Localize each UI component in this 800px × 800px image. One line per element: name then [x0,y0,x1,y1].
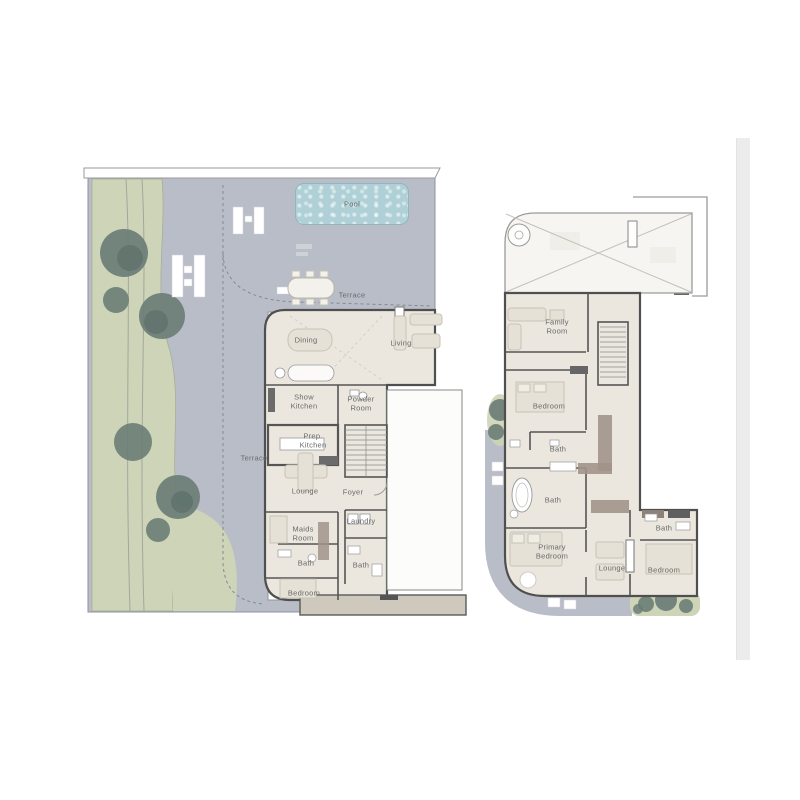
bath-2-label: Bath [545,495,561,504]
powder-room-label: Powder Room [348,395,375,414]
family-room-label: Family Room [545,318,569,337]
foyer-label: Foyer [343,487,363,496]
maids-room-label: Maids Room [292,525,313,544]
courtyard [387,390,462,590]
bath-2-label: Bath [353,560,369,569]
pool-label: Pool [344,199,360,208]
pool: Pool [295,183,409,225]
lounge-label: Lounge [292,486,319,495]
scrollbar[interactable] [736,138,750,660]
roof-void [505,213,692,293]
bedroom-1-label: Bedroom [533,401,565,410]
terrace-outdoor-label: Terrace [339,290,366,299]
bedroom-2-label: Bedroom [648,565,680,574]
floorplan-page: Pool Terrace Dining Living Show Kitchen … [0,0,800,800]
first-floor-plan: Family Room Bedroom Bath Bath Primary Be… [490,192,715,632]
bath-1-label: Bath [298,558,314,567]
dining-label: Dining [295,335,318,344]
ground-floor-plan: Pool Terrace Dining Living Show Kitchen … [82,166,472,631]
bath-3-label: Bath [656,523,672,532]
laundry-label: Laundry [347,516,376,525]
bedroom-label: Bedroom [288,588,320,597]
terrace-side-label: Terrace [241,453,268,462]
living-label: Living [390,338,411,347]
boundary-wall [84,168,440,178]
prep-kitchen-label: Prep. Kitchen [300,432,327,451]
ground-floor-graphics [82,166,472,631]
primary-bedroom-label: Primary Bedroom [536,543,568,562]
show-kitchen-label: Show Kitchen [291,393,318,412]
bath-1-label: Bath [550,444,566,453]
lounge-upper-label: Lounge [599,563,626,572]
